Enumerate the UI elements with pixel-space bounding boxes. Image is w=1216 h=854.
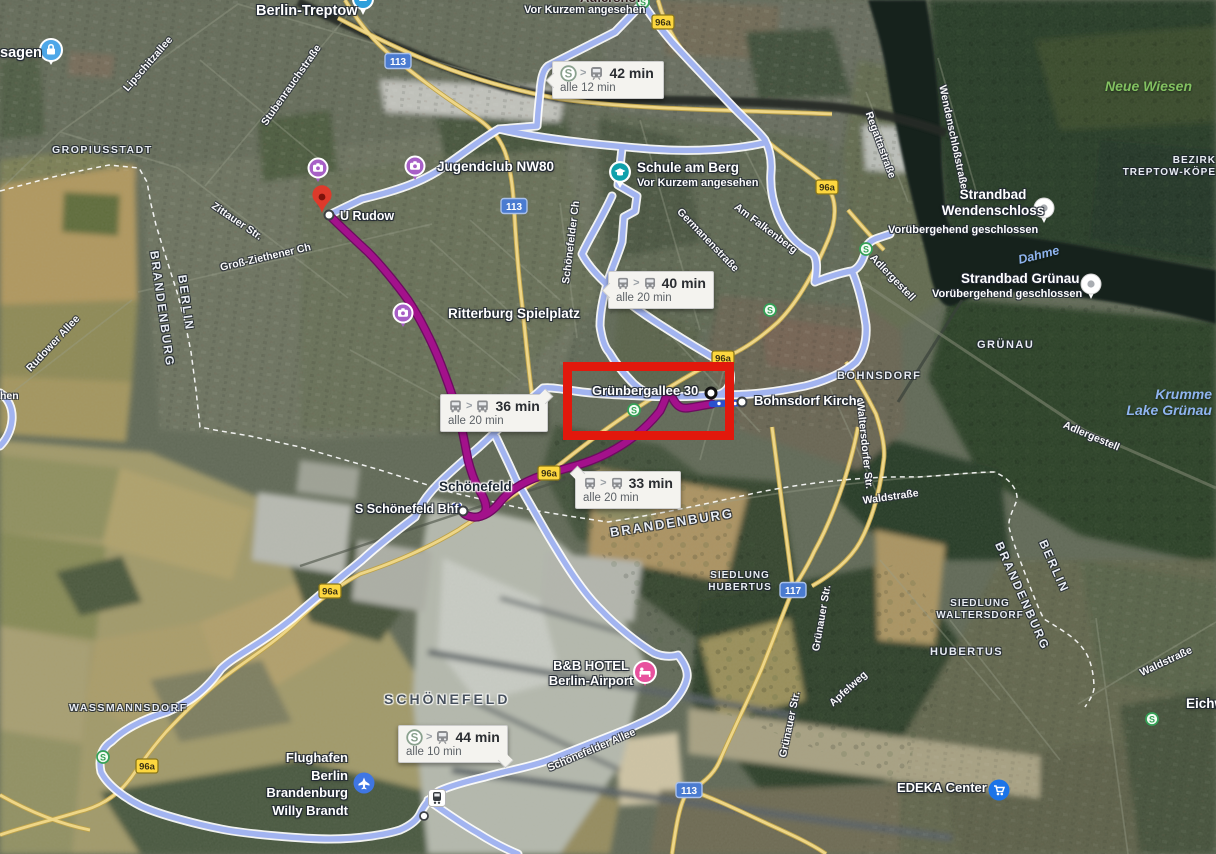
svg-text:117: 117 [785, 586, 802, 597]
svg-text:S: S [1149, 714, 1155, 724]
svg-text:113: 113 [506, 202, 523, 213]
svg-text:S: S [100, 752, 106, 762]
svg-text:96a: 96a [655, 18, 672, 29]
svg-text:96a: 96a [541, 469, 558, 480]
svg-text:S: S [767, 305, 773, 315]
svg-text:S: S [863, 244, 869, 254]
svg-text:113: 113 [681, 786, 698, 797]
svg-text:96a: 96a [322, 587, 339, 598]
svg-text:S: S [411, 732, 419, 744]
svg-text:96a: 96a [139, 762, 156, 773]
svg-text:113: 113 [390, 57, 407, 68]
svg-text:S: S [565, 68, 573, 80]
svg-text:96a: 96a [819, 183, 836, 194]
